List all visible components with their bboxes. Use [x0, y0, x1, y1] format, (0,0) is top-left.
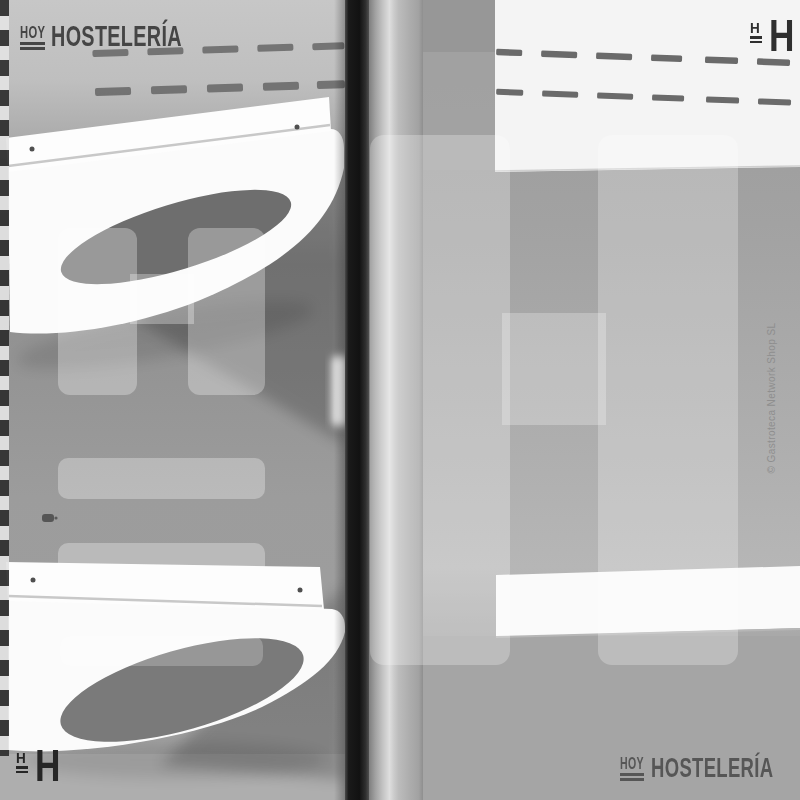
bracket-screw: [30, 147, 35, 152]
icon-underline-bar: [750, 36, 762, 39]
bracket-screw: [31, 578, 36, 583]
hoy-underline-bar: [620, 778, 644, 781]
h-big-letter: H: [35, 749, 60, 782]
hoy-block: HOY: [620, 758, 647, 781]
hosteleria-label: HOSTELERÍA: [651, 757, 773, 778]
bracket-screw: [298, 588, 303, 593]
hoy-underline-bar: [620, 773, 644, 776]
door-post: [345, 0, 369, 800]
hoy-label: HOY: [620, 758, 638, 770]
hoy-underline-bar: [20, 47, 45, 50]
h-big-letter: H: [769, 19, 794, 52]
h-small-letter: H: [750, 22, 762, 34]
copyright-text: © Gastroteca Network Shop SL: [766, 323, 777, 474]
hoy-block: HOY: [20, 26, 47, 50]
h-small-letter: H: [16, 752, 28, 764]
bracket-screw: [295, 125, 300, 130]
icon-h-small-block: H: [750, 22, 763, 43]
icon-h-small-block: H: [16, 752, 29, 773]
icon-underline-bar: [16, 771, 28, 774]
product-photo-card: HOY HOSTELERÍA HOY HOSTELERÍA H H H H: [0, 0, 800, 800]
right-upper-corner: [423, 0, 495, 52]
cabinet-photo: [0, 0, 800, 800]
hosteleria-label: HOSTELERÍA: [51, 25, 182, 47]
icon-underline-bar: [16, 766, 28, 769]
edge-slot-strip: [0, 0, 9, 756]
icon-underline-bar: [750, 41, 762, 44]
hoy-label: HOY: [20, 26, 38, 39]
post-edge-shadow: [334, 0, 346, 800]
